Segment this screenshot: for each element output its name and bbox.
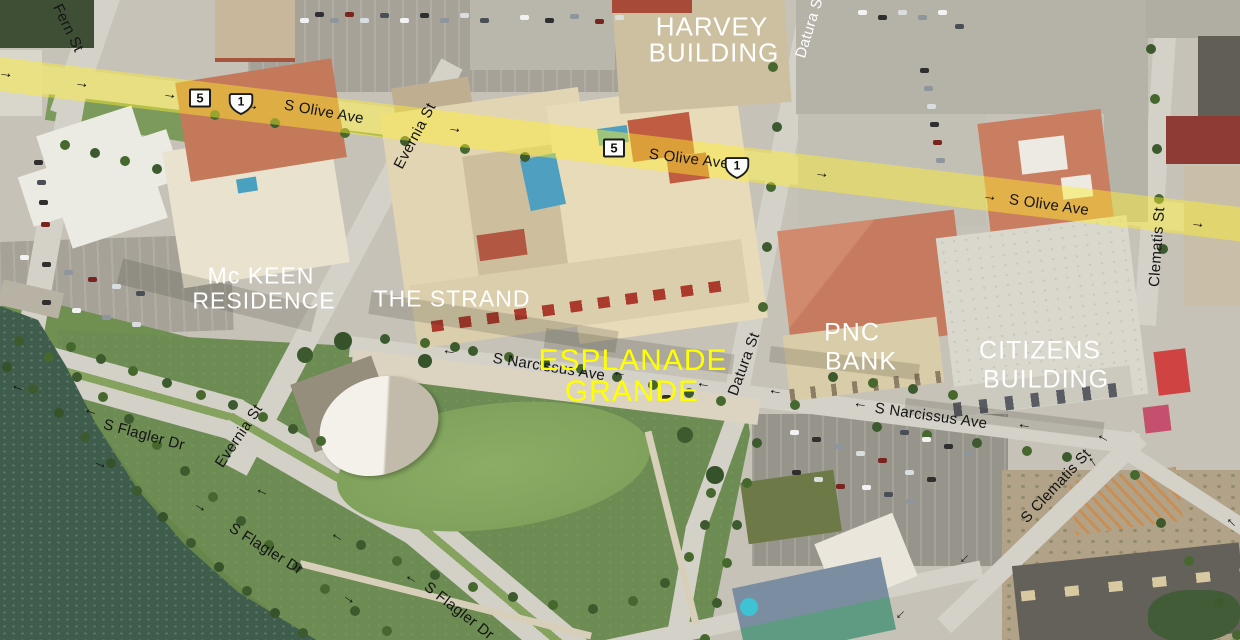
building-label-citizens: CITIZENS [979, 337, 1101, 366]
building-label-mckeen: Mc KEEN [208, 263, 315, 290]
red-building-small [1143, 405, 1172, 434]
direction-arrow-icon: → [814, 164, 831, 183]
building-label-strand: THE STRAND [374, 286, 531, 313]
route-shield-5: 5 [603, 139, 625, 158]
roof-structure [1018, 135, 1068, 174]
teal-roof-building [732, 557, 896, 640]
building-label-citizens: BUILDING [983, 366, 1109, 395]
route-shield-us-1: 1 [724, 157, 750, 180]
building [1146, 0, 1240, 38]
parked-cars [0, 0, 9, 5]
direction-arrow-icon: → [73, 74, 90, 93]
direction-arrow-icon: → [1190, 214, 1207, 233]
building [470, 0, 615, 70]
building-label-esplanade: ESPLANADE [538, 344, 727, 378]
building [1166, 116, 1240, 164]
direction-arrow-icon: → [0, 64, 15, 83]
tree-cluster [1148, 590, 1240, 640]
route-shield-5: 5 [189, 89, 211, 108]
direction-arrow-icon: → [440, 345, 457, 364]
direction-arrow-icon: → [446, 119, 463, 138]
direction-arrow-icon: → [1015, 419, 1032, 438]
direction-arrow-icon: → [766, 384, 784, 403]
direction-arrow-icon: → [982, 187, 999, 206]
route-shield-us-1: 1 [228, 93, 254, 116]
building [215, 0, 295, 62]
red-building-small [1153, 348, 1190, 396]
building-label-harvey: BUILDING [649, 38, 780, 69]
direction-arrow-icon: → [161, 84, 178, 103]
umbrella [740, 598, 758, 616]
direction-arrow-icon: → [852, 398, 869, 417]
aerial-map-viewport[interactable]: → → → → → → → → → → → → → → → → → → → → … [0, 0, 1240, 640]
building [1104, 0, 1148, 222]
building-label-pnc: BANK [825, 348, 897, 377]
building-label-pnc: PNC [824, 319, 880, 348]
building-label-mckeen: RESIDENCE [192, 288, 335, 315]
building [740, 470, 842, 544]
building [1198, 36, 1240, 120]
building [796, 0, 1148, 114]
building-label-esplanade: GRANDE [565, 375, 699, 409]
